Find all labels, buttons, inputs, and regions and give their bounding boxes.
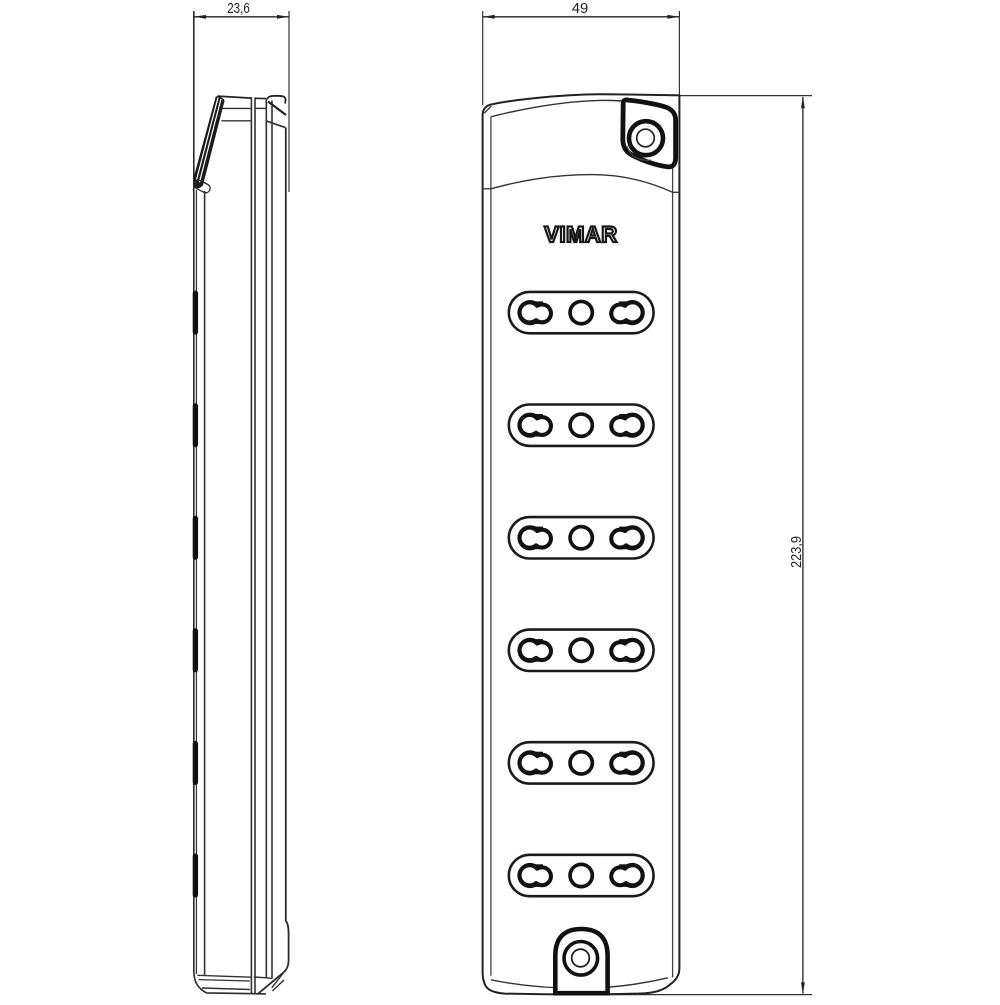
svg-text:223,9: 223,9 — [789, 536, 805, 568]
svg-text:23,6: 23,6 — [227, 1, 250, 17]
svg-text:49: 49 — [572, 1, 589, 17]
svg-text:VIMAR: VIMAR — [544, 222, 617, 247]
